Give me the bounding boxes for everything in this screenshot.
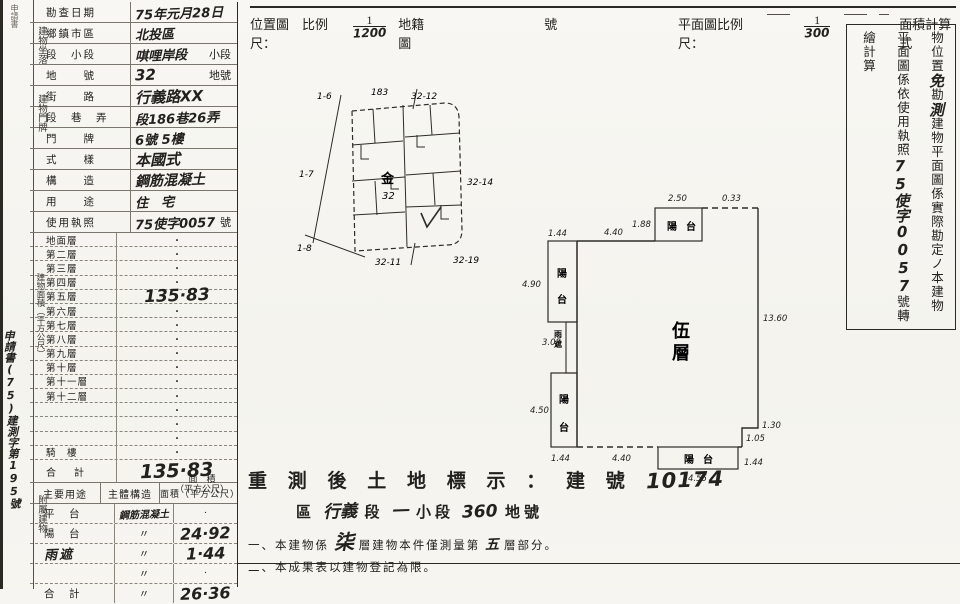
floor-area: ·	[117, 249, 237, 259]
svg-text:台: 台	[559, 421, 569, 434]
svg-text:層: 層	[672, 343, 690, 364]
resurvey-title: 重 測 後 土 地 標 示 ： 建 號	[248, 471, 633, 492]
left-margin-strip: 申請書 申請書(75)建測字第195號	[0, 0, 34, 589]
floor-area: ·	[117, 306, 237, 316]
group-label-attached: 附屬建物	[32, 495, 46, 533]
subsection-label: 小段	[416, 505, 454, 521]
attached-header-structure: 主體構造	[101, 483, 160, 503]
measured-floor-hw: 五	[485, 534, 500, 554]
floor-row: ·	[30, 417, 237, 431]
attached-structure: 〃	[115, 564, 174, 583]
margin-top-label: 申請書	[9, 4, 20, 28]
row-value: 唭哩岸段	[135, 44, 188, 65]
floor-row: 騎 樓·	[30, 446, 237, 460]
subsection-number-hw: 一	[391, 497, 409, 523]
table-row: 式 樣本國式	[30, 149, 237, 170]
map-label-32-14: 32-14	[467, 178, 493, 188]
balcony-label: 陽	[557, 268, 567, 280]
attached-area: 1·44	[185, 543, 225, 563]
attached-row: 陽 台〃24·92	[30, 524, 237, 544]
floor-area: ·	[117, 391, 237, 401]
map-label-183: 183	[371, 88, 388, 98]
floor-row: 第二層·	[30, 247, 237, 261]
note-column-2: 物位置免勘測建物平面圖係實際勘定ノ本建物	[919, 31, 953, 323]
map-label-32-11: 32-11	[375, 258, 401, 268]
table-row: 段 巷 弄段186巷26弄	[30, 107, 237, 128]
floor-row: 第五層135·83	[30, 290, 237, 304]
dim-bottom-left-width: 1.44	[551, 454, 570, 464]
plan-main-floor-label: 伍	[671, 320, 690, 342]
dim-lower-left-height: 4.50	[530, 406, 549, 416]
svg-text:台: 台	[686, 220, 696, 233]
hw-mian: 免	[919, 72, 954, 88]
map-label-1-8: 1-8	[297, 244, 312, 254]
floor-area: ·	[117, 405, 237, 415]
table-row: 使用執照75使字0057號	[30, 212, 237, 233]
plan-scale-label: 平面圖比例尺：	[678, 14, 757, 52]
note-column-1: 依實施建築改良物所有權第一次登記僅勘測建	[953, 31, 960, 323]
note1-suffix: 層部分。	[504, 540, 558, 552]
row-label: 用 途	[30, 191, 131, 211]
floor-area: ·	[117, 348, 237, 358]
floor-row: 第三層·	[30, 261, 237, 275]
row-value: 北投區	[135, 23, 175, 43]
attached-row: 雨遮〃1·44	[30, 544, 237, 564]
scanned-form-page: 申請書 申請書(75)建測字第195號 建物坐落 建物門牌 勘查日期75年元月2…	[0, 0, 960, 589]
row-value: 75年元月28日	[135, 1, 224, 23]
table-row: 勘查日期75年元月28日	[30, 2, 237, 23]
attached-use: 合 計	[30, 584, 115, 603]
map-center-parcel-number: 32	[382, 191, 395, 202]
row-label: 構 造	[30, 170, 131, 190]
floor-label: 騎 樓	[30, 446, 117, 459]
row-value: 32	[135, 66, 156, 85]
attached-structure: 〃	[115, 584, 174, 603]
floor-row: 第十一層·	[30, 375, 237, 389]
dim-tl-width: 1.44	[548, 229, 567, 239]
cadastral-sheet-suffix: 號	[544, 14, 557, 33]
map-label-32-19: 32-19	[453, 256, 479, 266]
dim-bottom: 4.40	[612, 454, 631, 464]
note1-middle: 層建物本件僅測量第	[359, 540, 481, 552]
floor-area: ·	[117, 263, 237, 273]
floor-area: ·	[117, 419, 237, 429]
parcel-number-hw: 360	[461, 501, 497, 522]
row-value: 6號 5樓	[135, 128, 184, 149]
floor-area-fifth: 135·83	[117, 289, 237, 303]
attached-area: ·	[174, 508, 237, 519]
bottom-rule	[237, 563, 960, 564]
row-label: 式 樣	[30, 149, 131, 169]
table-row: 段 小段唭哩岸段小段	[30, 44, 237, 65]
attached-area: 26·36	[180, 583, 231, 604]
section-name-hw: 行義	[322, 496, 357, 522]
dim-notch-2: 1.05	[746, 434, 765, 444]
floor-area: ·	[117, 334, 237, 344]
table-row: 構 造鋼筋混凝土	[30, 170, 237, 191]
regulation-notes-box: 依實施建築改良物所有權第一次登記僅勘測建 物位置免勘測建物平面圖係實際勘定ノ本建…	[846, 24, 956, 330]
note-column-3: 平面圖係依使用執照75使字0057號轉繪計算	[851, 31, 919, 323]
location-map-scale-label: 位置圖 比例尺：	[250, 14, 341, 52]
floor-area: ·	[117, 433, 237, 443]
row-value: 鋼筋混凝土	[135, 169, 206, 191]
plan-scale-fraction: 1 300	[804, 14, 830, 39]
floor-row: 第十層·	[30, 361, 237, 375]
dim-top-balcony-width: 2.50	[668, 194, 687, 204]
dim-gap: 1.88	[632, 220, 652, 230]
attached-area: 24·92	[180, 523, 231, 544]
dim-top-right-segment: 0.33	[722, 194, 741, 204]
floor-row: 第六層·	[30, 304, 237, 318]
table-row: 用 途住 宅	[30, 191, 237, 212]
row-value: 段186巷26弄	[135, 106, 220, 128]
table-row: 地 號32地號	[30, 65, 237, 86]
floor-area: ·	[117, 362, 237, 372]
floor-label: 第二層	[30, 247, 117, 260]
row-value: 本國式	[135, 148, 181, 171]
row-suffix: 號	[220, 214, 237, 230]
row-suffix: 地號	[209, 67, 237, 83]
building-number: 10174	[645, 467, 724, 494]
row-label: 勘查日期	[30, 2, 131, 22]
floor-row: ·	[30, 432, 237, 446]
floor-row: 第十二層·	[30, 389, 237, 403]
floor-row: 第八層·	[30, 332, 237, 346]
dim-notch-1: 1.30	[762, 421, 781, 431]
row-value: 行義路XX	[135, 84, 204, 107]
table-row: 門 牌6號 5樓	[30, 128, 237, 149]
building-info-table: 建物坐落 建物門牌 勘查日期75年元月28日 鄉鎮市區北投區 段 小段唭哩岸段小…	[30, 2, 238, 587]
attached-header-row: 主要用途 主體構造 面積（平方公尺）	[30, 483, 237, 504]
row-value: 75使字0057	[135, 211, 216, 233]
note2: 二、本成果表以建物登記為限。	[248, 559, 728, 575]
floor-row: 第七層·	[30, 318, 237, 332]
floor-area: ·	[117, 320, 237, 330]
floor-area: ·	[117, 376, 237, 386]
attached-use: 雨遮	[44, 543, 75, 563]
floor-row: 地面層·	[30, 233, 237, 247]
row-label: 使用執照	[30, 212, 131, 232]
row-value: 住 宅	[135, 191, 175, 211]
attached-total-row: 合 計〃26·36	[30, 584, 237, 603]
floor-row: ·	[30, 403, 237, 417]
attached-use	[30, 564, 115, 583]
map-label-32-12: 32-12	[411, 92, 437, 102]
floor-label: 地面層	[30, 233, 117, 246]
floor-area: ·	[117, 235, 237, 245]
attached-structure: 〃	[115, 524, 174, 543]
floor-row: 第九層·	[30, 347, 237, 361]
attached-row: 〃·	[30, 564, 237, 584]
map-label-1-7: 1-7	[299, 170, 314, 180]
total-floors-hw: 柒	[333, 526, 354, 556]
attached-structure: 鋼筋混凝土	[119, 505, 169, 522]
resurvey-text-block: 重 測 後 土 地 標 示 ： 建 號 10174 區 行義 段 一 小段 36…	[248, 466, 728, 575]
row-label: 地 號	[30, 65, 131, 85]
group-label-address: 建物門牌	[32, 94, 46, 132]
floor-label	[30, 432, 117, 445]
floor-area: ·	[117, 447, 237, 457]
map-label-1-6: 1-6	[317, 92, 332, 102]
district-label: 區	[296, 505, 315, 521]
parcel-label: 地號	[505, 505, 543, 521]
application-doc-number: 申請書(75)建測字第195號	[2, 330, 21, 509]
svg-text:台: 台	[703, 453, 713, 466]
attached-header-area: 面積（平方公尺）	[160, 483, 237, 503]
cadastral-map-label: 地籍圖	[398, 14, 432, 52]
balcony-label: 陽	[559, 394, 569, 406]
section-label: 段	[365, 505, 384, 521]
dim-right-height: 13.60	[763, 314, 787, 324]
hw-license-number: 75使字0057	[883, 156, 922, 295]
table-row: 鄉鎮市區北投區	[30, 23, 237, 44]
attached-structure: 〃	[115, 544, 174, 563]
location-map-sketch: 1-6 1-7 1-8 183 32-12 32-14 32-11 32-19 …	[295, 85, 495, 270]
dim-canopy-length: 3.08	[542, 338, 562, 348]
attached-area: ·	[174, 568, 237, 579]
map-center-char: 金	[380, 171, 395, 187]
floor-plan-drawing: 伍 層 陽 台 陽 台 陽 台 陽 台 雨 遮 1.44 4.90 4.40 1…	[520, 185, 800, 485]
dim-tl-height: 4.90	[522, 280, 541, 290]
total-label: 合 計	[30, 460, 117, 482]
attached-row: 平 台鋼筋混凝土·	[30, 504, 237, 524]
svg-text:台: 台	[557, 293, 567, 306]
group-label-area: 建物面積（平方公尺）	[32, 273, 46, 423]
balcony-label: 陽	[667, 221, 677, 233]
dim-top: 4.40	[604, 228, 623, 238]
location-map-scale-fraction: 1 1200	[353, 14, 386, 39]
dim-bottom-balcony-height: 1.44	[744, 458, 763, 468]
row-suffix: 小段	[209, 46, 237, 62]
hw-ce: 測	[919, 101, 954, 117]
table-row: 街 路行義路XX	[30, 86, 237, 107]
group-label-location: 建物坐落	[32, 26, 46, 64]
floor-total-row: 合 計 135·83 面 積 （平方公尺）	[30, 460, 237, 483]
note1-prefix: 一、本建物係	[248, 540, 329, 552]
balcony-label: 陽	[684, 454, 694, 466]
